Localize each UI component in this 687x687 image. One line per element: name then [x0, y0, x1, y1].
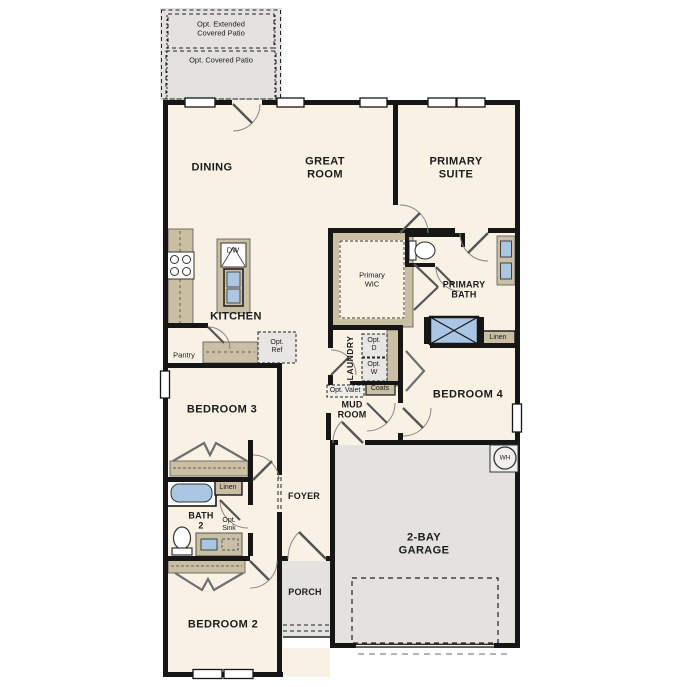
patio-floor	[160, 8, 282, 100]
opt-washer-box	[362, 358, 387, 381]
bath2-vanity	[196, 533, 242, 556]
opt-valet-box	[327, 385, 364, 397]
floor-plan-drawing	[0, 0, 687, 687]
opt-dryer-box	[362, 334, 387, 357]
primary-shower-icon	[430, 317, 478, 344]
bedroom3-closet-shelf	[170, 461, 248, 476]
bath2-tub-icon	[167, 480, 216, 506]
island-sink-icon	[224, 269, 243, 306]
primary-vanity	[497, 236, 515, 285]
water-heater-icon	[490, 445, 518, 472]
opt-fridge-box	[258, 332, 296, 363]
bedroom2-closet-shelf	[168, 559, 245, 573]
primary-linen-shelf	[482, 331, 515, 345]
primary-wic-shelving	[331, 232, 413, 327]
primary-toilet-icon	[409, 241, 435, 260]
bath2-toilet-icon	[172, 527, 192, 555]
bath2-linen-shelf	[215, 480, 242, 495]
stove-icon	[167, 252, 194, 279]
floor-plan: Opt. Extended Covered Patio Opt. Covered…	[0, 0, 687, 687]
